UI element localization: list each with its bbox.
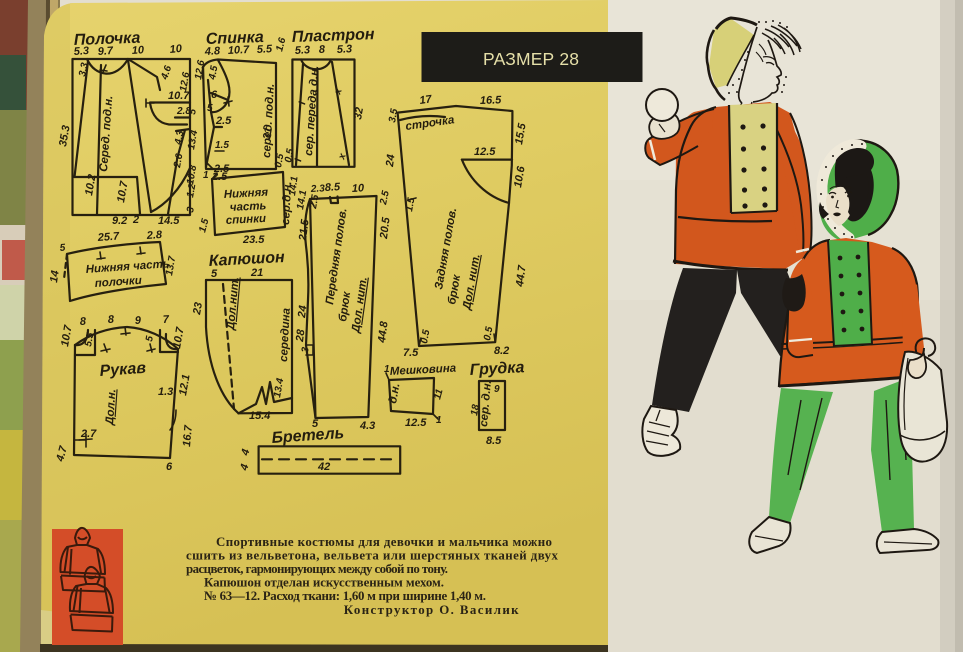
- svg-text:1: 1: [384, 364, 390, 375]
- svg-text:23: 23: [191, 301, 205, 316]
- svg-text:5.3: 5.3: [73, 45, 89, 58]
- svg-text:6: 6: [211, 89, 218, 101]
- svg-text:16.7: 16.7: [181, 424, 195, 447]
- svg-text:2.5: 2.5: [215, 115, 232, 127]
- svg-text:спинки: спинки: [226, 213, 267, 227]
- svg-text:32: 32: [352, 106, 366, 120]
- svg-text:5.3: 5.3: [295, 44, 311, 57]
- svg-text:2.3: 2.3: [310, 183, 326, 195]
- svg-text:5: 5: [312, 418, 319, 430]
- svg-text:9: 9: [494, 384, 500, 395]
- svg-text:9.2: 9.2: [112, 215, 127, 227]
- svg-text:Грудка: Грудка: [469, 359, 525, 379]
- svg-text:2: 2: [132, 214, 139, 226]
- svg-text:25.7: 25.7: [96, 230, 120, 244]
- svg-text:расцветок, гармонирующих между: расцветок, гармонирующих между собой по …: [186, 562, 448, 576]
- svg-text:10: 10: [352, 182, 366, 195]
- svg-text:6: 6: [166, 461, 173, 473]
- svg-text:сшить из вельветона, вельвета: сшить из вельветона, вельвета или шерстя…: [186, 549, 559, 563]
- svg-text:Пластрон: Пластрон: [292, 26, 376, 46]
- svg-text:5.3: 5.3: [337, 43, 353, 56]
- svg-text:сер.д.н.: сер.д.н.: [280, 181, 294, 225]
- svg-text:2.5: 2.5: [213, 163, 230, 175]
- svg-text:10.7: 10.7: [168, 90, 190, 102]
- svg-text:21: 21: [250, 267, 263, 279]
- svg-text:42: 42: [317, 461, 330, 473]
- svg-text:РАЗМЕР 28: РАЗМЕР 28: [483, 49, 579, 69]
- svg-text:Конструктор О. Василик: Конструктор О. Василик: [344, 603, 520, 617]
- svg-text:4.3: 4.3: [359, 420, 375, 432]
- svg-text:часть: часть: [230, 200, 267, 214]
- svg-text:1.5: 1.5: [215, 140, 229, 151]
- svg-text:1.3: 1.3: [158, 386, 173, 398]
- svg-text:8.5: 8.5: [486, 435, 502, 447]
- svg-text:10.7: 10.7: [228, 44, 251, 57]
- svg-text:5.5: 5.5: [257, 43, 274, 56]
- svg-text:14: 14: [48, 270, 62, 284]
- svg-text:8.5: 8.5: [325, 181, 342, 194]
- svg-text:10: 10: [169, 43, 183, 56]
- svg-text:Дол.н.: Дол.н.: [104, 389, 119, 427]
- svg-text:2.7: 2.7: [80, 428, 97, 440]
- svg-text:28: 28: [294, 328, 308, 343]
- svg-text:15.4: 15.4: [249, 410, 270, 422]
- svg-text:2.8: 2.8: [145, 229, 163, 242]
- svg-text:7.5: 7.5: [403, 347, 419, 359]
- svg-text:12.5: 12.5: [474, 146, 496, 158]
- svg-text:Капюшон отделан искусственным: Капюшон отделан искусственным мехом.: [204, 576, 444, 590]
- svg-text:1: 1: [203, 170, 209, 181]
- svg-text:10: 10: [131, 44, 145, 57]
- svg-text:Нижняя: Нижняя: [224, 187, 269, 201]
- svg-text:1: 1: [436, 415, 442, 426]
- svg-text:8.2: 8.2: [494, 345, 509, 357]
- svg-text:4.8: 4.8: [204, 45, 222, 58]
- svg-text:24: 24: [296, 305, 310, 320]
- svg-text:16.5: 16.5: [480, 94, 503, 107]
- svg-text:5: 5: [207, 103, 213, 114]
- svg-text:23.5: 23.5: [242, 234, 265, 246]
- svg-text:Спортивные костюмы для девочки: Спортивные костюмы для девочки и мальчик…: [216, 535, 552, 549]
- svg-text:5: 5: [211, 268, 218, 280]
- svg-text:9.7: 9.7: [97, 45, 114, 58]
- svg-text:12.5: 12.5: [405, 417, 427, 429]
- svg-text:№ 63—12. Расход ткани: 1,60 м: № 63—12. Расход ткани: 1,60 м при ширине…: [204, 589, 486, 603]
- svg-text:24: 24: [384, 154, 398, 169]
- svg-text:Рукав: Рукав: [99, 360, 147, 380]
- svg-text:14.5: 14.5: [158, 215, 180, 227]
